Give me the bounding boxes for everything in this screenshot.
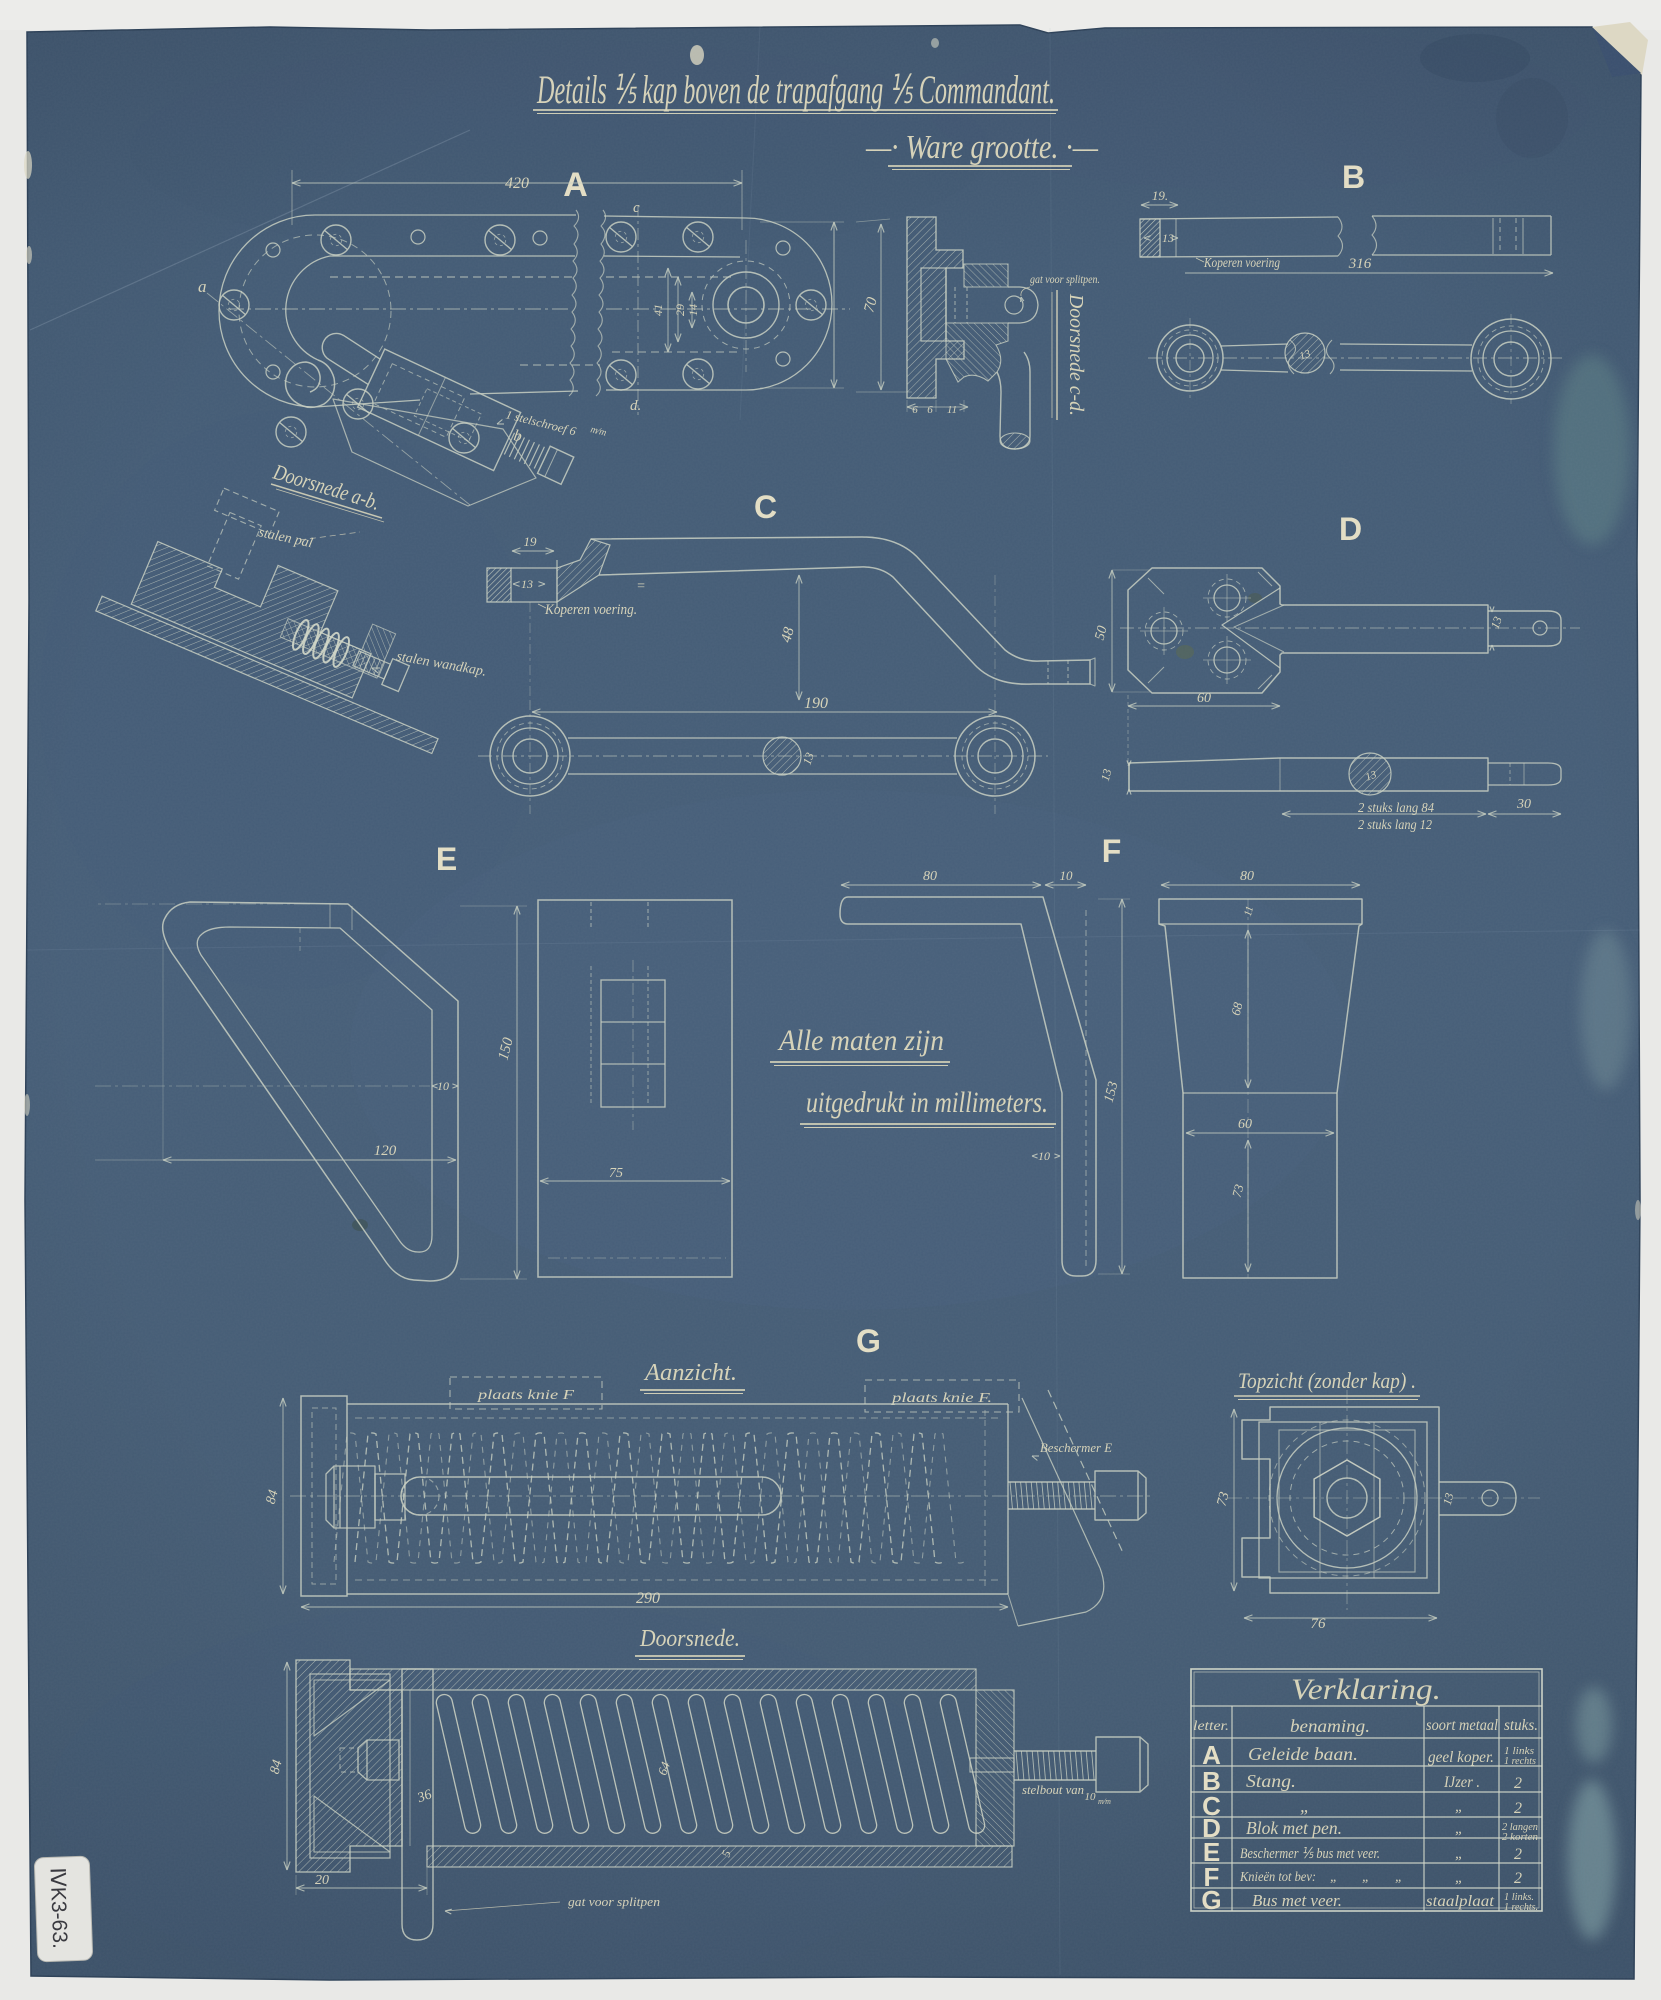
svg-text:13: 13 bbox=[521, 577, 533, 591]
svg-text:Alle maten zijn: Alle maten zijn bbox=[777, 1024, 944, 1057]
svg-text:„: „ bbox=[1330, 1870, 1338, 1885]
svg-text:Verklaring.: Verklaring. bbox=[1291, 1673, 1441, 1706]
svg-text:60: 60 bbox=[1197, 691, 1211, 706]
svg-text:ⅣK3-63.: ⅣK3-63. bbox=[46, 1867, 72, 1949]
svg-text:80: 80 bbox=[923, 869, 937, 884]
svg-text:„: „ bbox=[1362, 1870, 1370, 1885]
svg-text:„: „ bbox=[1455, 1846, 1463, 1862]
svg-text:Beschermer ⅕ bus met veer.: Beschermer ⅕ bus met veer. bbox=[1240, 1846, 1380, 1862]
svg-text:„: „ bbox=[1455, 1799, 1463, 1815]
svg-text:uitgedrukt in millimeters.: uitgedrukt in millimeters. bbox=[806, 1086, 1048, 1119]
svg-text:Bus met veer.: Bus met veer. bbox=[1252, 1891, 1342, 1910]
svg-text:13: 13 bbox=[1162, 231, 1174, 245]
svg-text:„: „ bbox=[1455, 1821, 1463, 1837]
svg-text:2: 2 bbox=[1514, 1800, 1522, 1817]
svg-text:80: 80 bbox=[1240, 869, 1254, 884]
svg-text:120: 120 bbox=[374, 1143, 397, 1159]
svg-text:Koperen voering.: Koperen voering. bbox=[544, 602, 637, 618]
svg-text:soort metaal: soort metaal bbox=[1426, 1717, 1498, 1734]
svg-text:2: 2 bbox=[1514, 1846, 1522, 1863]
svg-text:Knieën tot bev:: Knieën tot bev: bbox=[1239, 1870, 1316, 1885]
svg-text:2: 2 bbox=[1514, 1775, 1522, 1792]
svg-text:Details ⅕ kap boven de trapafg: Details ⅕ kap boven de trapafgang ⅕ Comm… bbox=[536, 67, 1055, 112]
svg-text:G: G bbox=[1201, 1885, 1222, 1915]
svg-text:2: 2 bbox=[1514, 1870, 1522, 1887]
svg-text:2 stuks lang 84: 2 stuks lang 84 bbox=[1358, 801, 1434, 816]
svg-text:Beschermer E: Beschermer E bbox=[1040, 1440, 1112, 1455]
svg-text:30: 30 bbox=[1516, 797, 1531, 812]
svg-text:„: „ bbox=[1455, 1870, 1463, 1886]
svg-text:10: 10 bbox=[1038, 1149, 1050, 1163]
svg-text:E: E bbox=[436, 841, 458, 877]
svg-text:=: = bbox=[636, 579, 645, 594]
svg-text:staalplaat: staalplaat bbox=[1426, 1893, 1495, 1910]
svg-text:420: 420 bbox=[505, 175, 529, 192]
svg-text:2 stuks lang 12: 2 stuks lang 12 bbox=[1358, 818, 1432, 833]
svg-text:IJzer .: IJzer . bbox=[1443, 1774, 1480, 1791]
svg-text:C: C bbox=[754, 489, 778, 525]
svg-text:190: 190 bbox=[804, 695, 828, 712]
svg-text:letter.: letter. bbox=[1193, 1719, 1229, 1734]
svg-text:a: a bbox=[198, 277, 207, 296]
svg-text:316: 316 bbox=[1348, 256, 1372, 272]
svg-text:—· Ware grootte. ·—: —· Ware grootte. ·— bbox=[865, 129, 1098, 166]
svg-text:c: c bbox=[633, 200, 640, 216]
svg-text:10: 10 bbox=[437, 1079, 449, 1093]
svg-text:Topzicht (zonder kap) .: Topzicht (zonder kap) . bbox=[1238, 1368, 1416, 1393]
svg-text:1 rechts.: 1 rechts. bbox=[1504, 1901, 1538, 1913]
svg-text:Koperen voering: Koperen voering bbox=[1203, 256, 1280, 271]
svg-text:Geleide baan.: Geleide baan. bbox=[1248, 1744, 1358, 1764]
svg-text:„: „ bbox=[1395, 1870, 1403, 1885]
svg-text:20: 20 bbox=[315, 1873, 329, 1888]
svg-text:Aanzicht.: Aanzicht. bbox=[643, 1360, 737, 1386]
svg-text:„: „ bbox=[1300, 1796, 1310, 1816]
svg-text:76: 76 bbox=[1311, 1616, 1327, 1632]
svg-text:plaats knie F: plaats knie F bbox=[477, 1388, 575, 1403]
svg-text:11: 11 bbox=[947, 404, 957, 416]
svg-text:m⁄m: m⁄m bbox=[1098, 1797, 1111, 1806]
svg-text:gat voor splitpen.: gat voor splitpen. bbox=[1030, 272, 1100, 286]
svg-text:14: 14 bbox=[686, 304, 700, 316]
svg-text:G: G bbox=[856, 1323, 882, 1359]
svg-text:d.: d. bbox=[630, 398, 641, 414]
svg-text:10: 10 bbox=[1060, 868, 1074, 883]
svg-text:D: D bbox=[1339, 511, 1363, 547]
svg-text:F: F bbox=[1102, 833, 1123, 869]
svg-text:Doorsnede.: Doorsnede. bbox=[639, 1626, 740, 1652]
svg-text:2 korten: 2 korten bbox=[1502, 1831, 1538, 1843]
svg-text:Doorsnede c-d.: Doorsnede c-d. bbox=[1065, 293, 1087, 416]
svg-text:19: 19 bbox=[524, 534, 538, 549]
svg-text:Blok met pen.: Blok met pen. bbox=[1246, 1818, 1342, 1838]
svg-text:75: 75 bbox=[609, 1166, 623, 1181]
svg-text:6: 6 bbox=[927, 404, 933, 416]
svg-text:10: 10 bbox=[1085, 1791, 1097, 1803]
svg-text:benaming.: benaming. bbox=[1290, 1716, 1370, 1736]
svg-text:29: 29 bbox=[673, 304, 687, 316]
svg-text:290: 290 bbox=[636, 1590, 660, 1607]
svg-text:geel koper.: geel koper. bbox=[1428, 1749, 1494, 1766]
svg-text:60: 60 bbox=[1238, 1117, 1252, 1132]
svg-text:stelbout van: stelbout van bbox=[1022, 1782, 1084, 1797]
svg-text:A: A bbox=[563, 166, 589, 204]
svg-text:1 rechts: 1 rechts bbox=[1504, 1755, 1536, 1767]
svg-text:19.: 19. bbox=[1152, 188, 1168, 203]
svg-text:stuks.: stuks. bbox=[1504, 1717, 1538, 1734]
svg-text:Stang.: Stang. bbox=[1246, 1771, 1296, 1791]
svg-text:gat voor splitpen: gat voor splitpen bbox=[568, 1894, 660, 1909]
svg-text:B: B bbox=[1342, 159, 1366, 195]
svg-text:41: 41 bbox=[651, 304, 665, 316]
